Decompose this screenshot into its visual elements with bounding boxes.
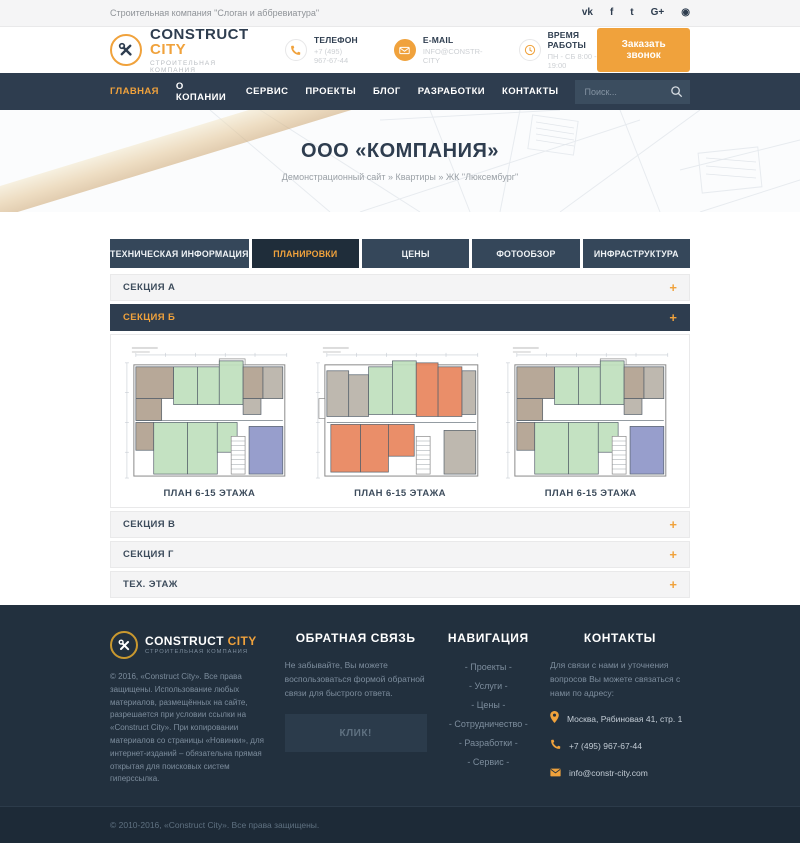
footer-copyright-text: © 2016, «Construct City». Все права защи… [110, 671, 276, 786]
footer-link-services[interactable]: - Услуги - [435, 677, 541, 696]
plus-icon: + [669, 518, 677, 531]
accordion-section-v[interactable]: СЕКЦИЯ В + [110, 511, 690, 538]
footer-contact-list: Москва, Рябиновая 41, стр. 1 +7 (495) 96… [550, 710, 690, 782]
logo[interactable]: CONSTRUCT CITY СТРОИТЕЛЬНАЯ КОМПАНИЯ [110, 27, 249, 74]
footer-copyright: © 2010-2016, «Construct City». Все права… [110, 807, 690, 830]
tab-photo-review[interactable]: ФОТООБЗОР [472, 239, 579, 268]
topbar: Строительная компания "Слоган и аббревиа… [0, 0, 800, 27]
content-area: ТЕХНИЧЕСКАЯ ИНФОРМАЦИЯ ПЛАНИРОВКИ ЦЕНЫ Ф… [110, 212, 690, 598]
social-circle-icon[interactable]: ◉ [681, 8, 690, 18]
nav-item-blog[interactable]: БЛОГ [373, 86, 401, 97]
search-icon[interactable] [670, 85, 683, 103]
pin-icon [550, 710, 559, 728]
floor-plan-caption: ПЛАН 6-15 ЭТАЖА [119, 484, 300, 501]
floor-plan-caption: ПЛАН 6-15 ЭТАЖА [310, 484, 491, 501]
hero-banner: ООО «КОМПАНИЯ» Демонстрационный сайт » К… [0, 110, 800, 212]
logo-text: CONSTRUCT CITY [150, 27, 249, 57]
twitter-icon[interactable]: t [630, 8, 633, 18]
tab-layouts[interactable]: ПЛАНИРОВКИ [252, 239, 359, 268]
header-email: E-MAIL INFO@CONSTR-CITY [394, 35, 483, 65]
floor-plans-panel: ПЛАН 6-15 ЭТАЖА ПЛАН 6-15 ЭТАЖА ПЛАН 6-1… [110, 334, 690, 508]
accordion-section-g[interactable]: СЕКЦИЯ Г + [110, 541, 690, 568]
floor-plan-card: ПЛАН 6-15 ЭТАЖА [310, 343, 491, 501]
clock-icon [519, 39, 541, 61]
footer-phone-row: +7 (495) 967-67-44 [550, 737, 690, 755]
footer-logo-subtitle: СТРОИТЕЛЬНАЯ КОМПАНИЯ [145, 649, 257, 655]
feedback-text: Не забывайте, Вы можете воспользоваться … [285, 658, 427, 700]
accordion-section-b[interactable]: СЕКЦИЯ Б + [110, 304, 690, 331]
page-title: ООО «КОМПАНИЯ» [0, 110, 800, 163]
floor-plan-card: ПЛАН 6-15 ЭТАЖА [500, 343, 681, 501]
accordion-section-a[interactable]: СЕКЦИЯ А + [110, 274, 690, 301]
floor-plan-image [310, 343, 491, 484]
site-footer: CONSTRUCT CITY СТРОИТЕЛЬНАЯ КОМПАНИЯ © 2… [0, 605, 800, 843]
tab-infrastructure[interactable]: ИНФРАСТРУКТУРА [583, 239, 690, 268]
nav-item-about[interactable]: О КОПАНИИ [176, 81, 229, 103]
nav-item-contacts[interactable]: КОНТАКТЫ [502, 86, 558, 97]
footer-contacts-text: Для связи с нами и уточнения вопросов Вы… [550, 658, 690, 700]
nav-item-service[interactable]: СЕРВИС [246, 86, 288, 97]
plus-icon: + [669, 548, 677, 561]
main-nav: ГЛАВНАЯ О КОПАНИИ СЕРВИС ПРОЕКТЫ БЛОГ РА… [0, 73, 800, 110]
floor-plan-caption: ПЛАН 6-15 ЭТАЖА [500, 484, 681, 501]
vk-icon[interactable]: vk [582, 8, 593, 18]
plus-icon: + [669, 578, 677, 591]
phone-icon [285, 39, 307, 61]
social-links: vk f t G+ ◉ [582, 8, 690, 18]
footer-logo[interactable]: CONSTRUCT CITY СТРОИТЕЛЬНАЯ КОМПАНИЯ [110, 631, 276, 659]
footer-nav-title: НАВИГАЦИЯ [435, 631, 541, 645]
footer-nav-links: - Проекты - - Услуги - - Цены - - Сотруд… [435, 658, 541, 772]
footer-about-column: CONSTRUCT CITY СТРОИТЕЛЬНАЯ КОМПАНИЯ © 2… [110, 631, 276, 786]
company-tagline: Строительная компания "Слоган и аббревиа… [110, 8, 319, 18]
envelope-icon [394, 39, 416, 61]
footer-feedback-column: ОБРАТНАЯ СВЯЗЬ Не забывайте, Вы можете в… [285, 631, 427, 786]
footer-email-row: info@constr-city.com [550, 764, 690, 782]
footer-link-service[interactable]: - Сервис - [435, 753, 541, 772]
nav-item-home[interactable]: ГЛАВНАЯ [110, 86, 159, 97]
tab-technical-info[interactable]: ТЕХНИЧЕСКАЯ ИНФОРМАЦИЯ [110, 239, 249, 268]
feedback-click-button[interactable]: КЛИК! [285, 714, 427, 752]
floor-plan-image [119, 343, 300, 484]
accordion-section-tech[interactable]: ТЕХ. ЭТАЖ + [110, 571, 690, 598]
nav-item-projects[interactable]: ПРОЕКТЫ [305, 86, 356, 97]
footer-contacts-column: КОНТАКТЫ Для связи с нами и уточнения во… [550, 631, 690, 786]
header-hours: ВРЕМЯ РАБОТЫ ПН - СБ 8:00 - 19:00 [519, 30, 598, 70]
search-box [575, 80, 690, 104]
header-phone: ТЕЛЕФОН +7 (495) 967-67-44 [285, 35, 358, 65]
site-header: CONSTRUCT CITY СТРОИТЕЛЬНАЯ КОМПАНИЯ ТЕЛ… [0, 27, 800, 73]
footer-contacts-title: КОНТАКТЫ [550, 631, 690, 645]
order-call-button[interactable]: Заказать звонок [597, 28, 690, 72]
floor-plan-image [500, 343, 681, 484]
tools-icon [110, 34, 142, 66]
nav-item-dev[interactable]: РАЗРАБОТКИ [418, 86, 485, 97]
facebook-icon[interactable]: f [610, 8, 613, 18]
footer-link-development[interactable]: - Разработки - [435, 734, 541, 753]
envelope-icon [550, 764, 561, 782]
plus-icon: + [669, 311, 677, 324]
footer-nav-column: НАВИГАЦИЯ - Проекты - - Услуги - - Цены … [435, 631, 541, 786]
footer-link-prices[interactable]: - Цены - [435, 696, 541, 715]
footer-logo-text: CONSTRUCT CITY [145, 635, 257, 647]
phone-icon [550, 737, 561, 755]
feedback-title: ОБРАТНАЯ СВЯЗЬ [285, 631, 427, 645]
floor-plan-card: ПЛАН 6-15 ЭТАЖА [119, 343, 300, 501]
plus-icon: + [669, 281, 677, 294]
footer-address-row: Москва, Рябиновая 41, стр. 1 [550, 710, 690, 728]
tools-icon [110, 631, 138, 659]
footer-link-projects[interactable]: - Проекты - [435, 658, 541, 677]
tab-prices[interactable]: ЦЕНЫ [362, 239, 469, 268]
sections-accordion: СЕКЦИЯ А + СЕКЦИЯ Б + ПЛАН 6-15 ЭТАЖА ПЛ… [110, 274, 690, 598]
footer-link-cooperation[interactable]: - Сотрудничество - [435, 715, 541, 734]
breadcrumb: Демонстрационный сайт » Квартиры » ЖК "Л… [0, 172, 800, 182]
google-plus-icon[interactable]: G+ [651, 8, 665, 18]
content-tabs: ТЕХНИЧЕСКАЯ ИНФОРМАЦИЯ ПЛАНИРОВКИ ЦЕНЫ Ф… [110, 239, 690, 268]
footer-bottom-bar: © 2010-2016, «Construct City». Все права… [0, 806, 800, 843]
logo-subtitle: СТРОИТЕЛЬНАЯ КОМПАНИЯ [150, 60, 249, 74]
